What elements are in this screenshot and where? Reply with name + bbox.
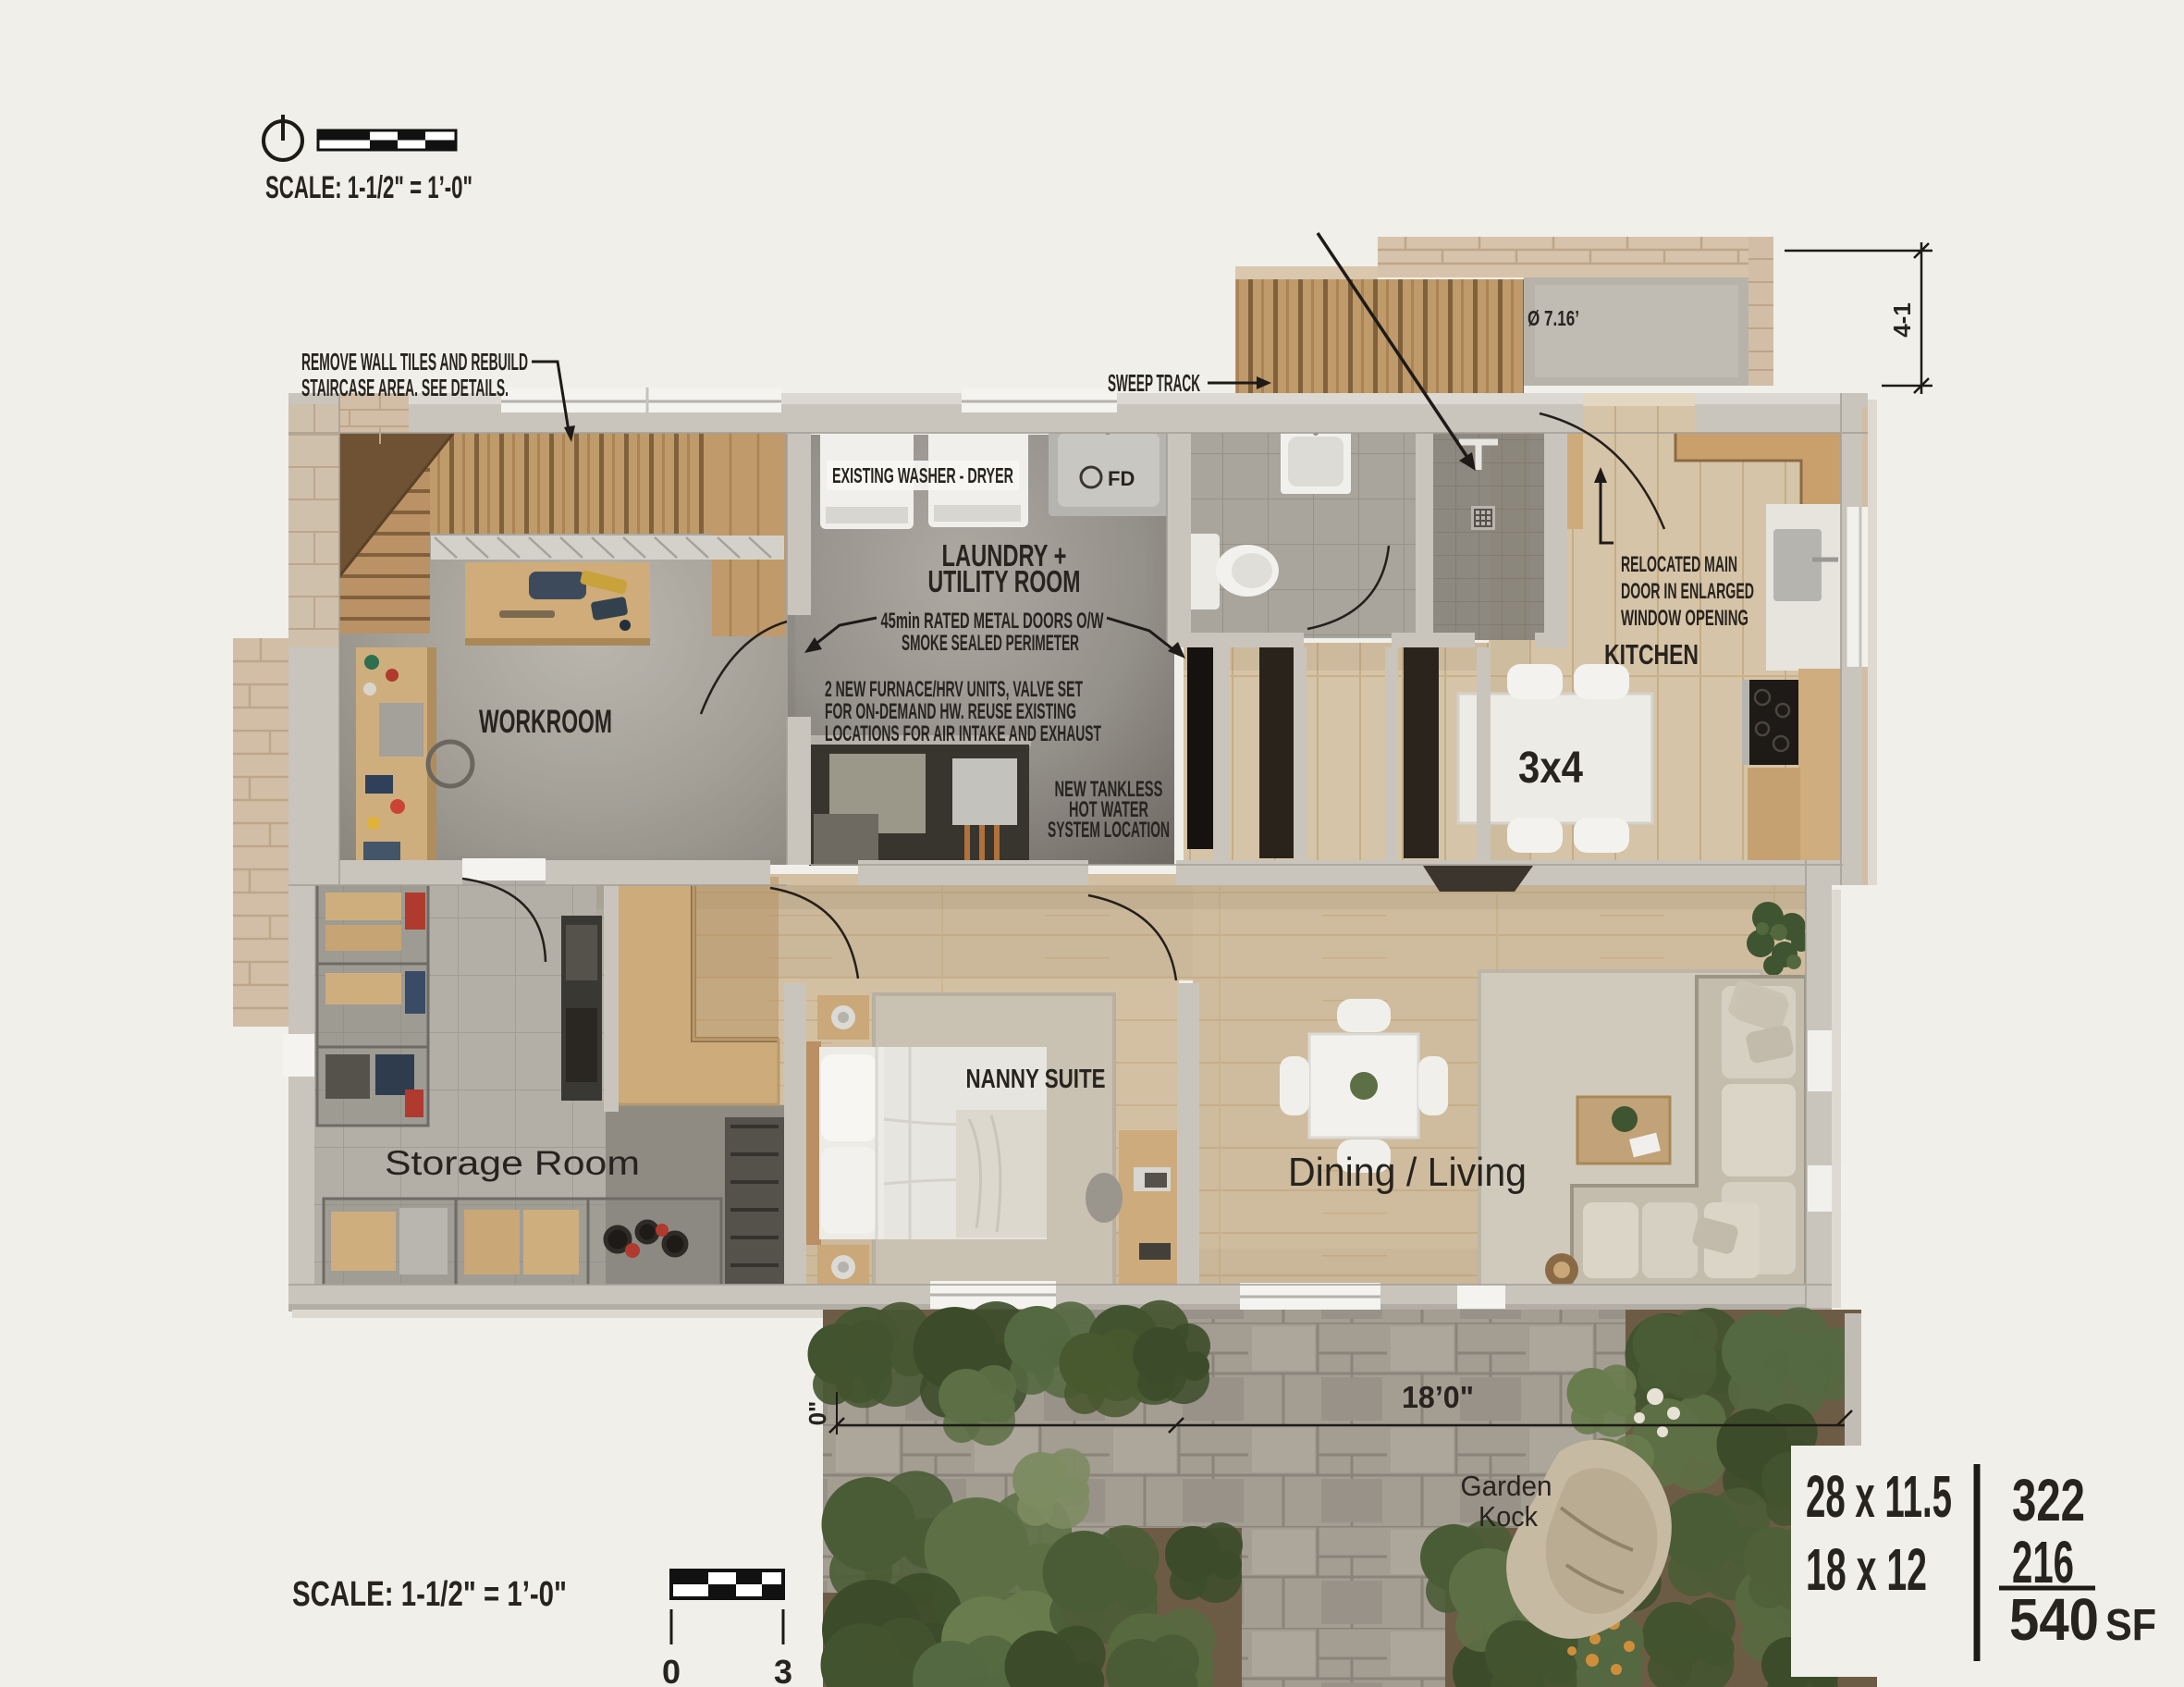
svg-text:0: 0 [662, 1653, 681, 1687]
svg-text:Ø 7.16’: Ø 7.16’ [1528, 306, 1579, 330]
svg-text:SYSTEM LOCATION: SYSTEM LOCATION [1048, 818, 1170, 843]
svg-text:LOCATIONS FOR AIR INTAKE AND E: LOCATIONS FOR AIR INTAKE AND EXHAUST [825, 721, 1101, 746]
svg-text:DOOR IN ENLARGED: DOOR IN ENLARGED [1621, 579, 1754, 604]
svg-text:SCALE: 1-1/2" = 1’-0": SCALE: 1-1/2" = 1’-0" [265, 170, 472, 205]
svg-text:Garden: Garden [1461, 1470, 1552, 1502]
svg-text:WORKROOM: WORKROOM [479, 704, 612, 740]
svg-text:3: 3 [774, 1653, 792, 1687]
svg-text:540: 540 [2009, 1586, 2099, 1653]
svg-text:0": 0" [804, 1401, 831, 1426]
svg-text:Kock: Kock [1478, 1500, 1538, 1533]
svg-text:KITCHEN: KITCHEN [1604, 638, 1699, 671]
svg-text:4-1: 4-1 [1888, 302, 1916, 338]
svg-text:UTILITY ROOM: UTILITY ROOM [928, 564, 1081, 598]
svg-text:28 x 11.5: 28 x 11.5 [1806, 1463, 1952, 1530]
svg-text:322: 322 [2012, 1467, 2085, 1533]
svg-text:NANNY SUITE: NANNY SUITE [966, 1065, 1106, 1094]
svg-text:SF: SF [2105, 1601, 2156, 1650]
svg-text:EXISTING WASHER - DRYER: EXISTING WASHER - DRYER [832, 463, 1013, 487]
svg-text:REMOVE WALL TILES AND REBUILD: REMOVE WALL TILES AND REBUILD [301, 348, 528, 376]
svg-text:RELOCATED MAIN: RELOCATED MAIN [1621, 552, 1737, 577]
svg-text:WINDOW OPENING: WINDOW OPENING [1621, 606, 1748, 631]
svg-text:FD: FD [1108, 467, 1135, 490]
svg-text:STAIRCASE AREA. SEE DETAILS.: STAIRCASE AREA. SEE DETAILS. [301, 374, 509, 401]
svg-text:45min RATED METAL DOORS O/W: 45min RATED METAL DOORS O/W [881, 609, 1104, 634]
svg-text:3x4: 3x4 [1518, 744, 1583, 793]
svg-text:SWEEP TRACK: SWEEP TRACK [1108, 369, 1200, 397]
svg-text:18’0": 18’0" [1402, 1380, 1474, 1414]
svg-text:Dining / Living: Dining / Living [1288, 1150, 1527, 1195]
svg-text:Storage Room: Storage Room [385, 1144, 640, 1182]
svg-text:FOR ON-DEMAND HW. REUSE EXISTI: FOR ON-DEMAND HW. REUSE EXISTING [825, 699, 1076, 724]
svg-text:SMOKE SEALED PERIMETER: SMOKE SEALED PERIMETER [902, 631, 1079, 656]
svg-text:18 x 12: 18 x 12 [1806, 1536, 1927, 1603]
svg-text:SCALE: 1-1/2" = 1’-0": SCALE: 1-1/2" = 1’-0" [292, 1575, 567, 1614]
svg-text:2 NEW FURNACE/HRV UNITS, VALVE: 2 NEW FURNACE/HRV UNITS, VALVE SET [825, 677, 1083, 702]
